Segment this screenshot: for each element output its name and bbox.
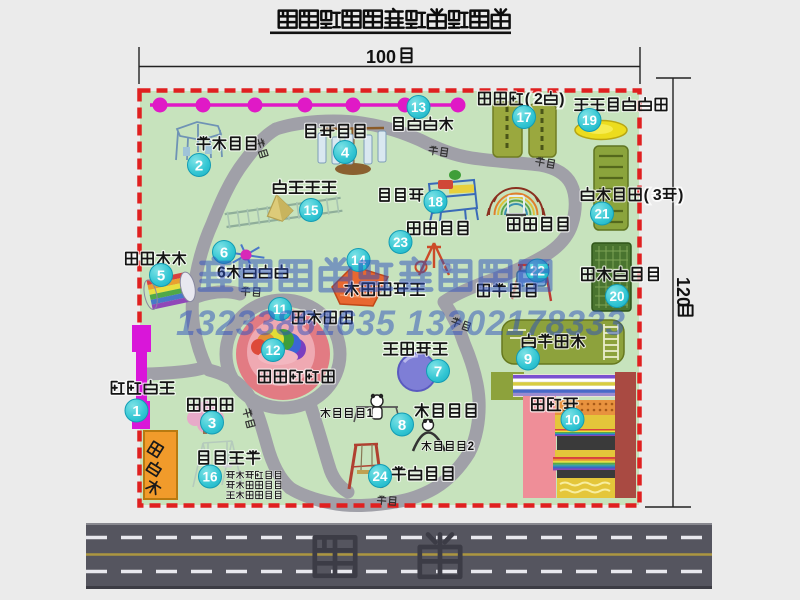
svg-text:16: 16: [202, 469, 218, 484]
svg-text:19: 19: [582, 113, 597, 128]
svg-text:): ): [678, 187, 683, 204]
svg-text:13233861635 13202178333: 13233861635 13202178333: [176, 304, 625, 343]
svg-text:21: 21: [594, 206, 610, 221]
svg-text:3: 3: [653, 187, 662, 204]
svg-text:100: 100: [366, 47, 396, 67]
svg-text:(: (: [644, 187, 650, 204]
svg-text:2: 2: [195, 157, 203, 174]
svg-text:6: 6: [220, 244, 228, 261]
svg-text:3: 3: [208, 415, 216, 432]
svg-text:2: 2: [534, 91, 543, 108]
svg-text:5: 5: [157, 267, 165, 284]
svg-text:17: 17: [516, 110, 531, 125]
svg-text:24: 24: [372, 469, 388, 484]
svg-text:120: 120: [673, 277, 693, 307]
svg-text:15: 15: [303, 203, 319, 218]
svg-text:): ): [559, 91, 564, 108]
svg-text:1: 1: [132, 403, 140, 420]
svg-text:20: 20: [609, 289, 624, 304]
svg-text:4: 4: [341, 144, 350, 161]
svg-text:2: 2: [468, 440, 474, 453]
svg-text:13: 13: [411, 100, 427, 115]
svg-text:7: 7: [434, 363, 442, 380]
svg-text:23: 23: [393, 235, 409, 250]
svg-text:9: 9: [524, 351, 532, 368]
svg-text:10: 10: [565, 412, 580, 427]
svg-text:12: 12: [265, 343, 280, 358]
svg-text:18: 18: [428, 194, 444, 209]
svg-text:8: 8: [398, 417, 406, 434]
svg-text:1: 1: [367, 407, 374, 420]
